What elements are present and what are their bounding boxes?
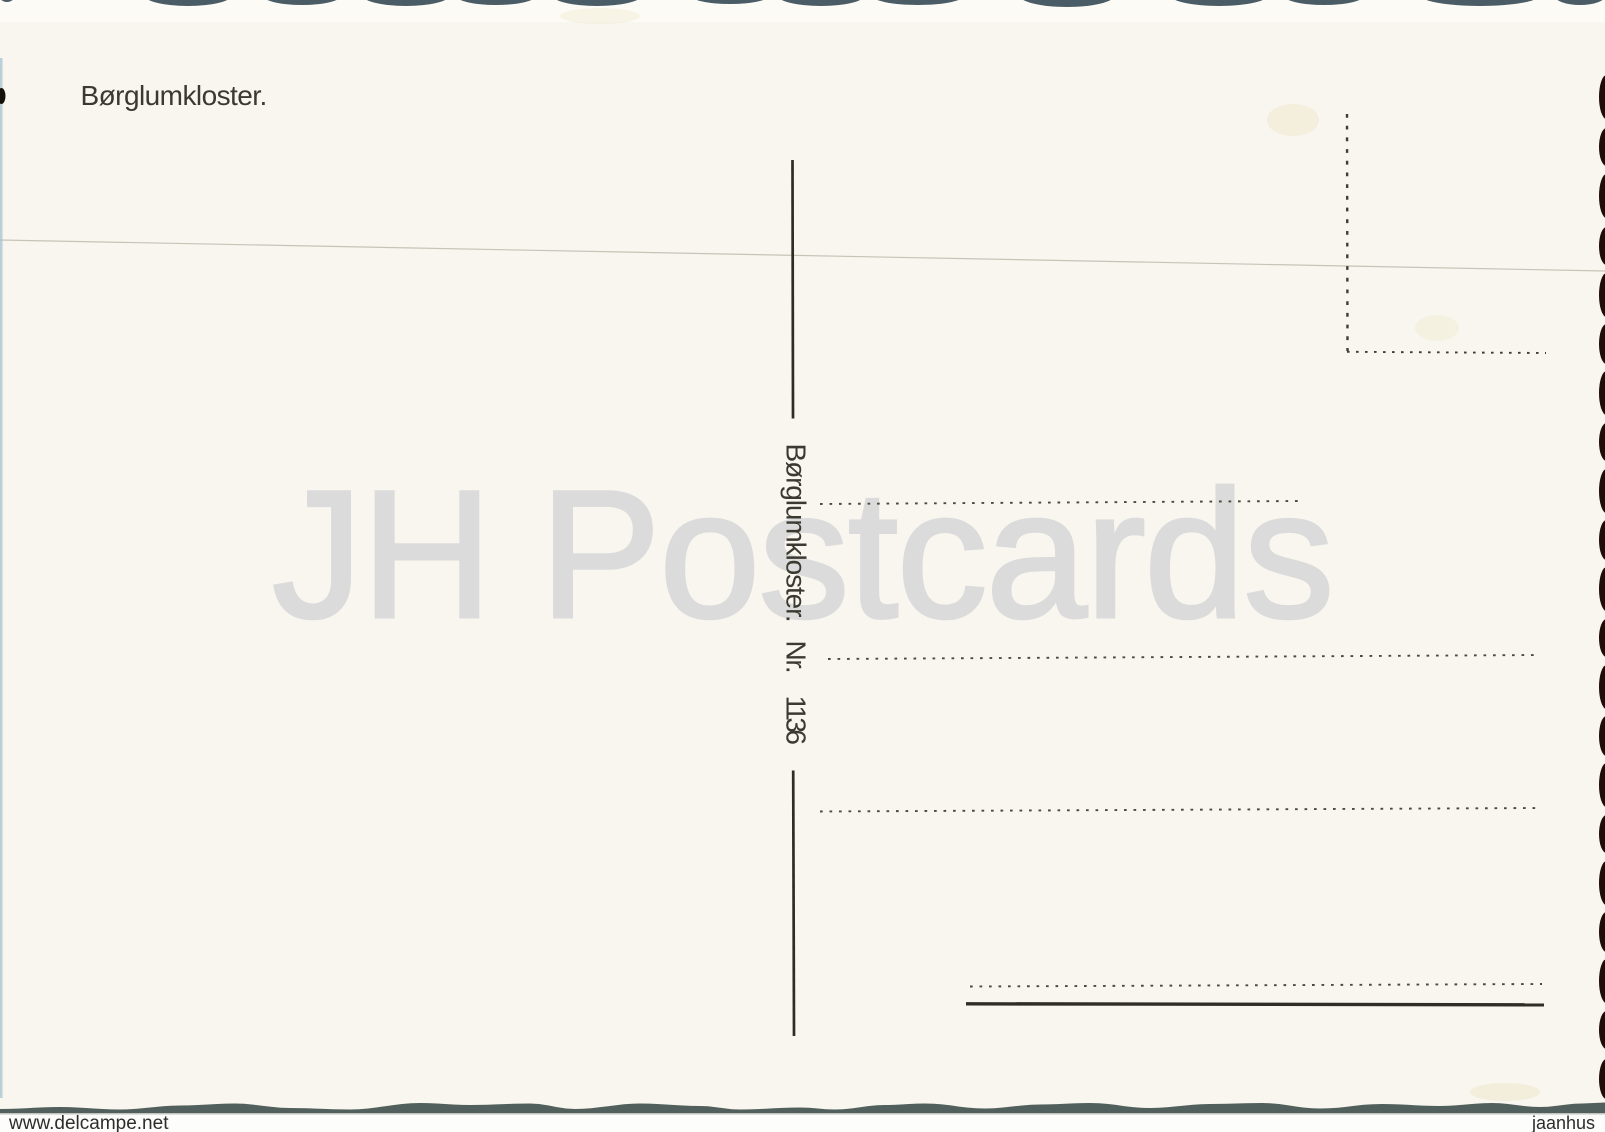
svg-text:Børglumkloster.: Børglumkloster.	[81, 80, 267, 111]
svg-text:1136: 1136	[781, 696, 812, 745]
svg-text:Børglumkloster.: Børglumkloster.	[781, 444, 812, 622]
svg-text:Nr.: Nr.	[781, 641, 812, 673]
svg-text:jaanhus: jaanhus	[1531, 1113, 1595, 1132]
svg-text:www.delcampe.net: www.delcampe.net	[8, 1113, 169, 1132]
